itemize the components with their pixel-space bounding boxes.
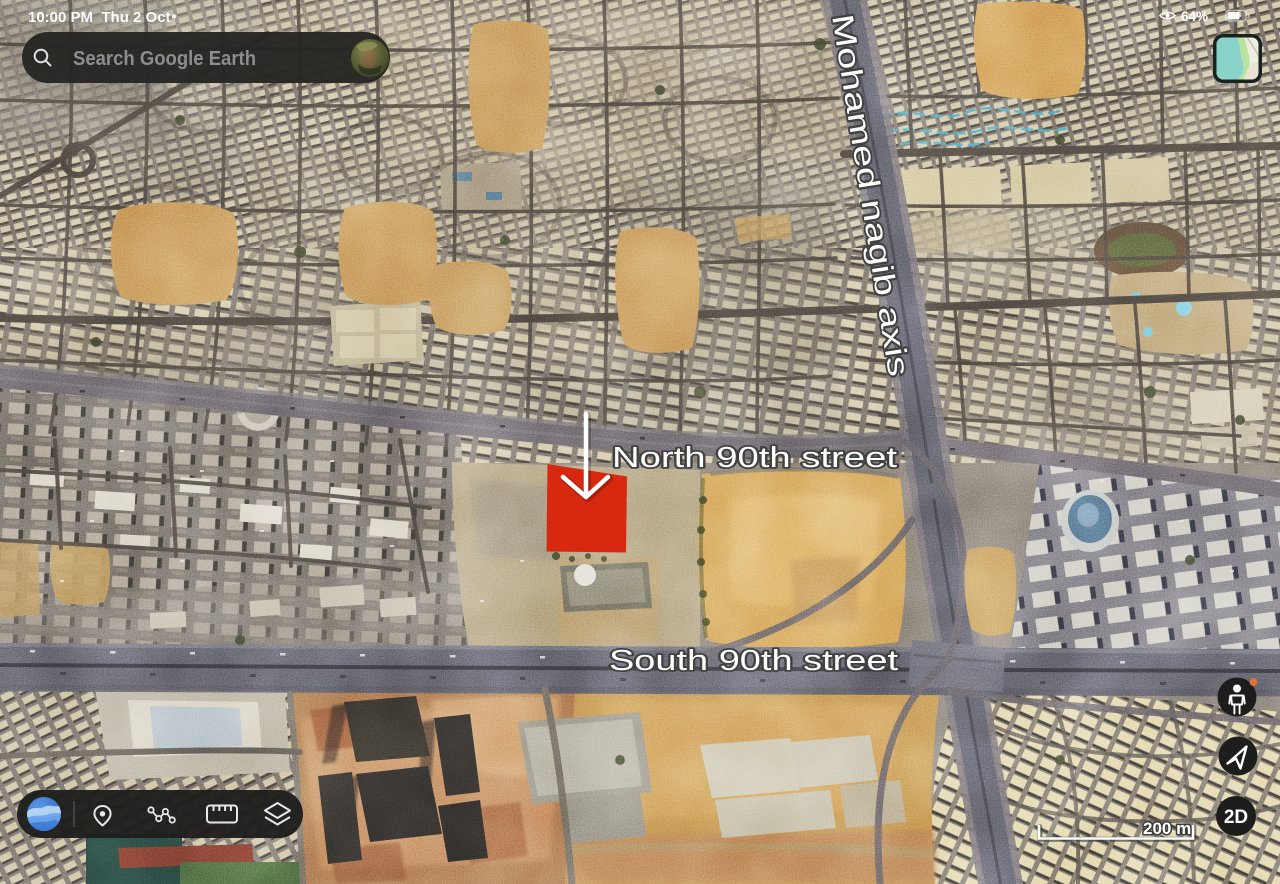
svg-text:North 90th street: North 90th street [612,442,897,474]
svg-text:2D: 2D [1224,807,1248,828]
svg-text:South 90th street: South 90th street [609,645,898,677]
svg-text:Mohamed nagib axis: Mohamed nagib axis [825,12,915,379]
svg-text:Search Google Earth: Search Google Earth [73,48,256,70]
svg-text:10:00 PM Thu 2 Oct: 10:00 PM Thu 2 Oct [28,9,171,26]
svg-text:200 m: 200 m [1143,819,1191,838]
svg-text:64%: 64% [1181,9,1208,24]
